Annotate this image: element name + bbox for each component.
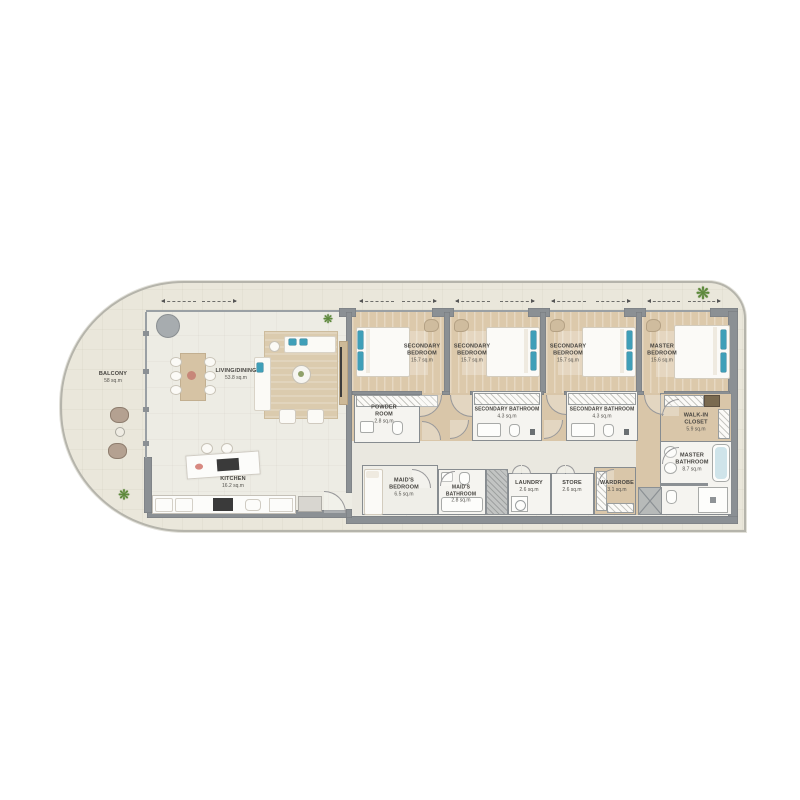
room-label-powder-room: POWDER ROOM 2.8 sq.m	[365, 405, 403, 426]
wall	[432, 308, 454, 317]
shaft-x-mark	[639, 488, 661, 514]
shower-fitting	[624, 429, 629, 435]
bed-pillow-teal	[721, 353, 726, 372]
room-area: 2.8 sq.m	[442, 497, 480, 504]
room-area: 4.3 sq.m	[565, 413, 639, 420]
bathtub	[712, 444, 730, 482]
room-name: MAID'S BATHROOM	[442, 484, 480, 497]
room-label-living-dining: LIVING/DINING 53.8 sq.m	[205, 368, 267, 382]
room-label-master-bedroom: MASTER BEDROOM 15.6 sq.m	[643, 344, 681, 365]
slide-arrow-left	[360, 301, 394, 302]
dining-chair	[204, 385, 216, 395]
tv-screen	[340, 347, 342, 397]
bed-sheet	[524, 329, 528, 373]
bathtub-water	[715, 447, 727, 479]
room-name: SECONDARY BEDROOM	[403, 344, 441, 358]
wall	[624, 308, 646, 317]
room-name: SECONDARY BEDROOM	[453, 344, 491, 358]
balcony-table	[115, 427, 125, 437]
vanity-sink	[571, 423, 595, 437]
room-area: 2.6 sq.m	[510, 487, 548, 494]
bedroom-partition-wall	[444, 312, 450, 393]
bedroom-chair	[646, 319, 661, 332]
shower-drain	[710, 497, 716, 503]
room-label-secondary-bedroom-1: SECONDARY BEDROOM 15.7 sq.m	[403, 344, 441, 365]
structural-column	[156, 314, 180, 338]
room-name: MASTER BATHROOM	[673, 453, 711, 467]
elevator-shaft	[638, 487, 662, 515]
room-label-secondary-bathroom-1: SECONDARY BATHROOM 4.3 sq.m	[470, 407, 544, 420]
bed-pillow-teal	[531, 352, 536, 370]
fridge	[155, 498, 173, 512]
room-name: LAUNDRY	[510, 480, 548, 487]
toilet	[666, 490, 677, 504]
armchair	[279, 409, 296, 424]
room-label-secondary-bedroom-3: SECONDARY BEDROOM 15.7 sq.m	[549, 344, 587, 365]
dining-chair	[170, 385, 182, 395]
room-name: MAID'S BEDROOM	[385, 478, 423, 492]
slide-arrow-right	[402, 301, 436, 302]
toilet	[603, 424, 614, 437]
room-area: 16.2 sq.m	[210, 483, 256, 490]
slide-arrow-left	[456, 301, 490, 302]
room-name: KITCHEN	[210, 476, 256, 483]
glass-post	[143, 369, 149, 374]
maids-bed-pillow	[366, 471, 379, 478]
room-name: SECONDARY BEDROOM	[549, 344, 587, 358]
walk-in-dresser	[704, 395, 720, 407]
bed-pillow-teal	[358, 352, 363, 370]
slide-arrow-left	[552, 301, 586, 302]
room-name: MASTER BEDROOM	[643, 344, 681, 358]
slide-arrow-left	[648, 301, 680, 302]
shower-fitting	[530, 429, 535, 435]
room-area: 3.1 sq.m	[598, 487, 636, 494]
slide-arrow-right	[596, 301, 630, 302]
glass-post	[143, 441, 149, 446]
balcony-chair	[110, 407, 129, 423]
palm-plant-icon: ❋	[118, 487, 130, 504]
cabinet	[175, 498, 193, 512]
room-label-secondary-bathroom-2: SECONDARY BATHROOM 4.3 sq.m	[565, 407, 639, 420]
room-area: 8.7 sq.m	[673, 467, 711, 474]
wall	[346, 509, 352, 518]
closet-hatch	[718, 409, 730, 439]
room-name: WALK-IN CLOSET	[677, 413, 715, 427]
room-label-wardrobe: WARDROBE 3.1 sq.m	[598, 480, 636, 494]
closet-hatch	[568, 393, 636, 405]
room-area: 58 sq.m	[90, 378, 136, 385]
vanity-sink	[477, 423, 501, 437]
coffee-table-plant	[298, 371, 304, 377]
room-name: WARDROBE	[598, 480, 636, 487]
bed-pillow-teal	[627, 331, 632, 349]
kitchen-sink	[245, 499, 261, 511]
corridor-vestibule-floor	[352, 441, 362, 515]
bed-pillow-teal	[721, 330, 726, 349]
toilet	[459, 472, 470, 485]
master-bath-divider-wall	[660, 483, 708, 486]
room-area: 5.9 sq.m	[677, 427, 715, 434]
room-label-balcony: BALCONY 58 sq.m	[90, 371, 136, 385]
bed-pillow-teal	[627, 352, 632, 370]
bed	[356, 327, 410, 377]
bed-sheet	[620, 329, 624, 373]
cooktop	[217, 458, 240, 472]
room-label-kitchen: KITCHEN 16.2 sq.m	[210, 476, 256, 490]
dining-chair	[170, 357, 182, 367]
room-label-master-bathroom: MASTER BATHROOM 8.7 sq.m	[673, 453, 711, 474]
bed-sheet	[366, 329, 370, 373]
exterior-wall-left	[144, 457, 152, 513]
floor-plan: ❋ ❋ ❋ BALCONY 58 sq.m LIVING/DINING 53.8…	[60, 281, 742, 528]
room-area: 6.5 sq.m	[385, 492, 423, 499]
room-area: 2.6 sq.m	[553, 487, 591, 494]
exterior-wall-bottom	[346, 516, 738, 524]
bedroom-chair	[454, 319, 469, 332]
oven	[213, 498, 233, 511]
wall	[442, 391, 450, 395]
room-name: SECONDARY BATHROOM	[565, 407, 639, 414]
room-area: 15.7 sq.m	[403, 358, 441, 365]
closet-hatch	[474, 393, 540, 405]
sofa-pillow-teal	[300, 339, 307, 345]
kitchen-island	[185, 450, 260, 479]
kitchen-counter	[152, 495, 296, 514]
slide-arrow-left	[162, 301, 196, 302]
bedroom-partition-wall	[540, 312, 546, 393]
floorplan-page: { "plan_title": "4-bedroom apartment flo…	[0, 0, 800, 800]
bed-pillow-teal	[358, 331, 363, 349]
room-area: 15.7 sq.m	[453, 358, 491, 365]
bedroom-partition-wall	[636, 312, 642, 393]
room-area: 4.3 sq.m	[470, 413, 544, 420]
slide-arrow-right	[500, 301, 534, 302]
island-decor	[195, 463, 203, 470]
glass-post	[143, 407, 149, 412]
cabinet	[269, 498, 293, 512]
closet-hatch	[607, 503, 634, 513]
palm-plant-icon: ❋	[323, 312, 333, 326]
bed-pillow-teal	[531, 331, 536, 349]
room-label-secondary-bedroom-2: SECONDARY BEDROOM 15.7 sq.m	[453, 344, 491, 365]
glass-post	[143, 331, 149, 336]
balcony-chair	[108, 443, 127, 459]
dining-chair	[170, 371, 182, 381]
dining-chair	[204, 357, 216, 367]
room-name: POWDER ROOM	[365, 405, 403, 419]
room-label-maids-bedroom: MAID'S BEDROOM 6.5 sq.m	[385, 478, 423, 499]
side-table	[269, 341, 280, 352]
room-area: 2.8 sq.m	[365, 419, 403, 426]
washer-drum	[515, 500, 526, 511]
room-name: SECONDARY BATHROOM	[470, 407, 544, 414]
room-label-store: STORE 2.6 sq.m	[553, 480, 591, 494]
bedroom-chair	[550, 319, 565, 332]
armchair	[307, 409, 324, 424]
service-shaft	[486, 469, 508, 515]
room-label-maids-bathroom: MAID'S BATHROOM 2.8 sq.m	[442, 484, 480, 504]
room-name: LIVING/DINING	[205, 368, 267, 375]
room-label-walk-in-closet: WALK-IN CLOSET 5.9 sq.m	[677, 413, 715, 434]
toilet	[509, 424, 520, 437]
kitchen-stool	[201, 443, 213, 454]
sofa-pillow-teal	[289, 339, 296, 345]
kitchen-appliance	[298, 496, 322, 512]
room-name: STORE	[553, 480, 591, 487]
room-name: BALCONY	[90, 371, 136, 378]
room-area: 15.7 sq.m	[549, 358, 587, 365]
room-label-laundry: LAUNDRY 2.6 sq.m	[510, 480, 548, 494]
bedroom-chair	[424, 319, 439, 332]
bed-sheet	[713, 327, 717, 375]
room-area: 15.6 sq.m	[643, 358, 681, 365]
table-centerpiece	[187, 371, 196, 380]
wall	[528, 308, 550, 317]
room-area: 53.8 sq.m	[205, 375, 267, 382]
slide-arrow-right	[202, 301, 236, 302]
slide-arrow-right	[688, 301, 720, 302]
